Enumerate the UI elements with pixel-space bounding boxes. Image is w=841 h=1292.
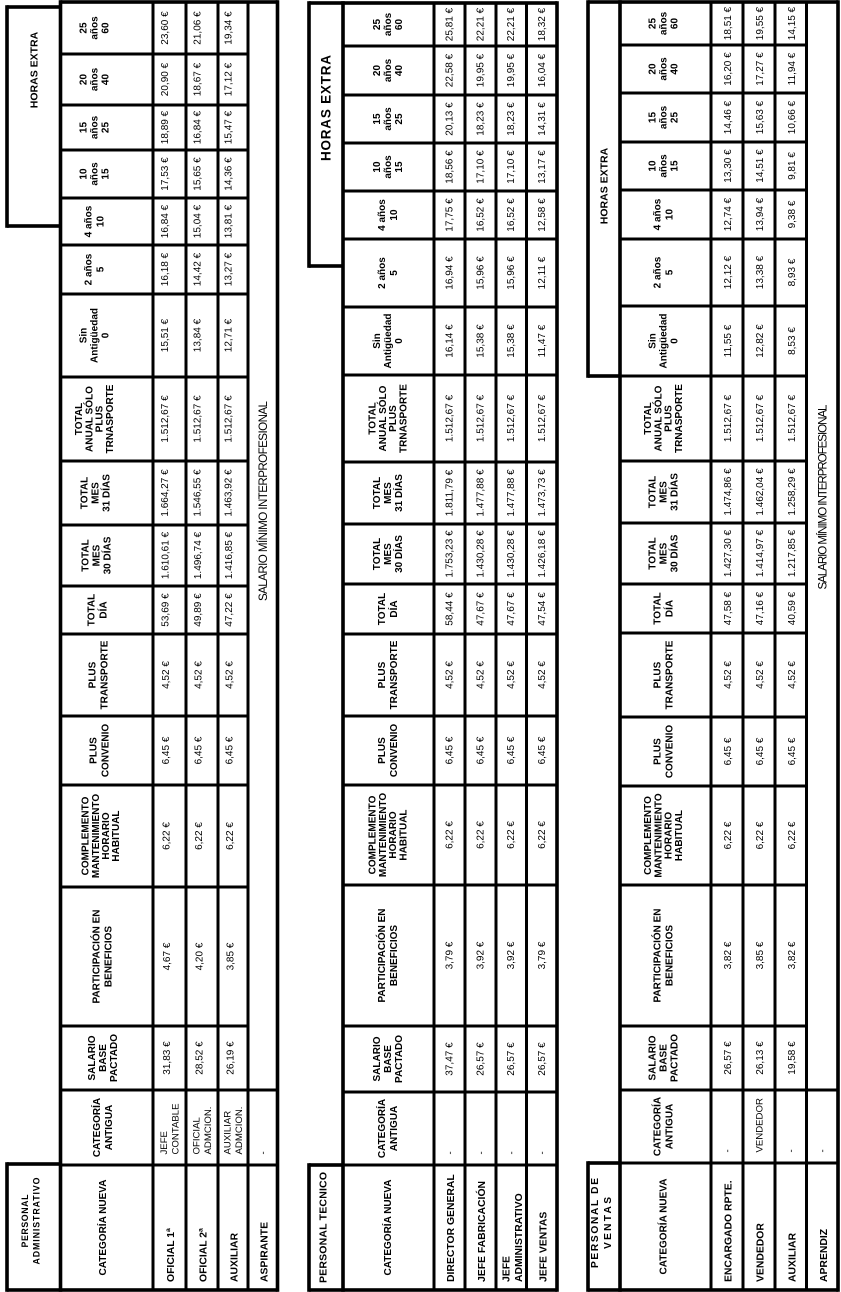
svg-text:20,13 €: 20,13 € — [445, 102, 456, 136]
svg-text:3,79 €: 3,79 € — [445, 941, 456, 969]
svg-text:19,55 €: 19,55 € — [755, 6, 766, 40]
svg-text:TRNASPORTE: TRNASPORTE — [674, 384, 685, 453]
svg-text:CONTABLE: CONTABLE — [171, 1104, 182, 1155]
svg-text:-: - — [786, 1149, 797, 1152]
svg-text:20: 20 — [648, 63, 659, 75]
svg-text:6,22 €: 6,22 € — [506, 821, 517, 849]
svg-text:PARTICIPACIÓN EN: PARTICIPACIÓN EN — [375, 908, 388, 1002]
svg-text:1.427,30 €: 1.427,30 € — [723, 529, 734, 577]
svg-text:años: años — [383, 58, 394, 82]
svg-text:22,21 €: 22,21 € — [506, 7, 517, 41]
svg-text:15,96 €: 15,96 € — [476, 256, 487, 290]
svg-text:1.546,55 €: 1.546,55 € — [193, 469, 204, 517]
svg-text:31 DÍAS: 31 DÍAS — [100, 474, 113, 512]
svg-text:1.512,67 €: 1.512,67 € — [787, 394, 798, 442]
svg-text:TOTAL: TOTAL — [648, 476, 659, 508]
svg-text:9,81 €: 9,81 € — [787, 152, 798, 180]
svg-text:CATEGORÍA: CATEGORÍA — [375, 1099, 388, 1158]
svg-text:14,31 €: 14,31 € — [537, 102, 548, 136]
svg-text:ANUAL SÓLO: ANUAL SÓLO — [82, 386, 95, 452]
svg-text:años: años — [90, 16, 101, 40]
svg-text:ANUAL SÓLO: ANUAL SÓLO — [651, 385, 664, 451]
svg-text:1.414,97 €: 1.414,97 € — [755, 529, 766, 577]
svg-text:15: 15 — [79, 122, 90, 134]
svg-text:años: años — [90, 162, 101, 186]
svg-text:3,82 €: 3,82 € — [787, 941, 798, 969]
svg-text:12,12 €: 12,12 € — [723, 255, 734, 289]
svg-text:58,44 €: 58,44 € — [445, 592, 456, 626]
svg-text:4 años: 4 años — [377, 199, 388, 231]
svg-text:14,36 €: 14,36 € — [224, 157, 235, 191]
svg-text:16,84 €: 16,84 € — [160, 204, 171, 238]
svg-text:PACTADO: PACTADO — [394, 1035, 405, 1083]
svg-text:3,92 €: 3,92 € — [506, 941, 517, 969]
svg-text:PARTICIPACIÓN EN: PARTICIPACIÓN EN — [651, 908, 664, 1002]
svg-text:10,66 €: 10,66 € — [787, 100, 798, 134]
svg-text:1.512,67 €: 1.512,67 € — [224, 395, 235, 443]
svg-text:HABITUAL: HABITUAL — [111, 810, 122, 861]
svg-text:ANTIGUA: ANTIGUA — [104, 1105, 115, 1151]
svg-text:8,93 €: 8,93 € — [787, 258, 798, 286]
svg-text:3,85 €: 3,85 € — [225, 942, 236, 970]
svg-text:15,51 €: 15,51 € — [160, 318, 171, 352]
svg-text:ANUAL SÓLO: ANUAL SÓLO — [376, 385, 389, 451]
svg-text:SALARIO: SALARIO — [87, 1035, 98, 1080]
svg-text:16,94 €: 16,94 € — [445, 256, 456, 290]
svg-text:0: 0 — [101, 332, 112, 338]
svg-text:18,23 €: 18,23 € — [476, 102, 487, 136]
svg-text:4,52 €: 4,52 € — [755, 661, 766, 689]
svg-text:PLUS: PLUS — [89, 737, 100, 764]
svg-text:Sin: Sin — [372, 333, 383, 349]
svg-text:1.258,29 €: 1.258,29 € — [787, 468, 798, 516]
svg-text:ADMCION.: ADMCION. — [234, 1107, 245, 1155]
svg-text:1.496,74 €: 1.496,74 € — [193, 531, 204, 579]
svg-text:17,27 €: 17,27 € — [755, 52, 766, 86]
svg-text:12,71 €: 12,71 € — [224, 318, 235, 352]
svg-text:1.512,67 €: 1.512,67 € — [445, 394, 456, 442]
svg-text:6,45 €: 6,45 € — [161, 736, 172, 764]
svg-text:HORAS EXTRA: HORAS EXTRA — [28, 31, 40, 108]
svg-text:-: - — [445, 1151, 456, 1154]
svg-text:1.474,86 €: 1.474,86 € — [723, 468, 734, 516]
svg-text:SALARIO: SALARIO — [648, 1035, 659, 1080]
svg-text:0: 0 — [394, 338, 405, 344]
svg-text:1.462,04 €: 1.462,04 € — [755, 468, 766, 516]
svg-text:15: 15 — [101, 168, 112, 180]
svg-text:16,84 €: 16,84 € — [193, 110, 204, 144]
svg-text:HABITUAL: HABITUAL — [674, 810, 685, 861]
svg-text:Sin: Sin — [79, 328, 90, 344]
svg-text:MES: MES — [91, 482, 102, 504]
svg-text:16,20 €: 16,20 € — [723, 52, 734, 86]
svg-text:4,52 €: 4,52 € — [161, 661, 172, 689]
svg-text:25: 25 — [670, 112, 681, 124]
svg-text:BENEFICIOS: BENEFICIOS — [104, 926, 115, 987]
svg-text:47,54 €: 47,54 € — [537, 592, 548, 626]
svg-text:6,45 €: 6,45 € — [723, 737, 734, 765]
svg-text:3,79 €: 3,79 € — [537, 941, 548, 969]
svg-text:17,10 €: 17,10 € — [476, 150, 487, 184]
svg-text:APRENDIZ: APRENDIZ — [819, 1228, 830, 1282]
svg-text:6,22 €: 6,22 € — [194, 822, 205, 850]
svg-text:DIRECTOR GENERAL: DIRECTOR GENERAL — [446, 1174, 457, 1282]
svg-text:17,10 €: 17,10 € — [506, 150, 517, 184]
svg-text:1.477,88 €: 1.477,88 € — [506, 469, 517, 517]
svg-text:Sin: Sin — [648, 333, 659, 349]
svg-text:31 DÍAS: 31 DÍAS — [668, 473, 681, 511]
svg-text:37,47 €: 37,47 € — [445, 1042, 456, 1076]
svg-text:ADMINISTRATIVO: ADMINISTRATIVO — [32, 1177, 42, 1264]
svg-text:13,94 €: 13,94 € — [755, 197, 766, 231]
svg-text:BASE: BASE — [383, 1045, 394, 1073]
svg-text:6,45 €: 6,45 € — [445, 736, 456, 764]
svg-text:1.426,18 €: 1.426,18 € — [537, 530, 548, 578]
svg-text:4,52 €: 4,52 € — [224, 661, 235, 689]
svg-text:19,34 €: 19,34 € — [224, 11, 235, 45]
svg-text:ASPIRANTE: ASPIRANTE — [259, 1222, 270, 1282]
svg-text:13,84 €: 13,84 € — [193, 318, 204, 352]
svg-text:TOTAL: TOTAL — [653, 592, 664, 624]
svg-text:PLUS: PLUS — [653, 738, 664, 765]
svg-text:ANTIGUA: ANTIGUA — [389, 1106, 400, 1152]
svg-text:1.217,85 €: 1.217,85 € — [787, 529, 798, 577]
svg-text:1.463,92 €: 1.463,92 € — [224, 469, 235, 517]
svg-text:6,45 €: 6,45 € — [787, 737, 798, 765]
svg-text:CATEGORÍA NUEVA: CATEGORÍA NUEVA — [96, 1180, 109, 1276]
svg-text:BASE: BASE — [659, 1044, 670, 1072]
svg-text:HORAS EXTRA: HORAS EXTRA — [599, 147, 611, 224]
svg-text:26,57 €: 26,57 € — [723, 1041, 734, 1075]
svg-text:25: 25 — [101, 122, 112, 134]
svg-text:CATEGORÍA NUEVA: CATEGORÍA NUEVA — [657, 1179, 670, 1275]
svg-text:14,46 €: 14,46 € — [723, 100, 734, 134]
svg-text:4,52 €: 4,52 € — [506, 661, 517, 689]
svg-text:22,21 €: 22,21 € — [476, 7, 487, 41]
svg-text:11,47 €: 11,47 € — [537, 324, 548, 357]
svg-text:Antigüedad: Antigüedad — [659, 314, 670, 369]
svg-text:PLUS: PLUS — [87, 661, 98, 688]
svg-text:JEFE VENTAS: JEFE VENTAS — [538, 1212, 549, 1282]
svg-text:2 años: 2 años — [377, 257, 388, 289]
svg-text:AUXILIAR: AUXILIAR — [223, 1111, 234, 1155]
svg-text:años: años — [659, 57, 670, 81]
svg-text:BASE: BASE — [98, 1044, 109, 1072]
svg-text:30 DÍAS: 30 DÍAS — [668, 534, 681, 572]
svg-text:19,95 €: 19,95 € — [476, 53, 487, 87]
svg-text:18,32 €: 18,32 € — [537, 7, 548, 41]
svg-text:14,15 €: 14,15 € — [787, 6, 798, 40]
svg-text:47,58 €: 47,58 € — [723, 591, 734, 625]
svg-text:TOTAL: TOTAL — [81, 539, 92, 571]
svg-text:25: 25 — [394, 113, 405, 125]
svg-text:PERSONAL DE: PERSONAL DE — [590, 1178, 601, 1268]
svg-text:años: años — [90, 115, 101, 139]
svg-text:años: años — [383, 12, 394, 36]
svg-text:12,58 €: 12,58 € — [537, 198, 548, 232]
svg-text:6,45 €: 6,45 € — [194, 736, 205, 764]
svg-text:años: años — [659, 11, 670, 35]
svg-text:1.477,88 €: 1.477,88 € — [476, 469, 487, 517]
svg-text:VENTAS: VENTAS — [603, 1197, 614, 1249]
svg-text:21,06 €: 21,06 € — [193, 11, 204, 45]
svg-text:AUXILIAR: AUXILIAR — [230, 1232, 241, 1282]
svg-text:4,67 €: 4,67 € — [162, 942, 173, 970]
svg-text:10: 10 — [389, 209, 400, 221]
svg-text:ADMINISTRATIVO: ADMINISTRATIVO — [514, 1193, 525, 1282]
svg-text:14,42 €: 14,42 € — [193, 252, 204, 286]
svg-text:CATEGORÍA: CATEGORÍA — [90, 1098, 103, 1157]
svg-text:31,83 €: 31,83 € — [162, 1041, 173, 1075]
svg-text:60: 60 — [101, 22, 112, 34]
svg-text:OFICIAL: OFICIAL — [192, 1117, 203, 1155]
svg-text:TOTAL: TOTAL — [372, 538, 383, 570]
svg-text:BENEFICIOS: BENEFICIOS — [665, 925, 676, 986]
svg-text:30 DÍAS: 30 DÍAS — [392, 535, 405, 573]
svg-text:PLUS: PLUS — [377, 661, 388, 688]
svg-text:47,67 €: 47,67 € — [506, 592, 517, 626]
svg-text:6,22 €: 6,22 € — [723, 821, 734, 849]
svg-text:26,57 €: 26,57 € — [476, 1042, 487, 1076]
svg-text:13,17 €: 13,17 € — [537, 150, 548, 184]
svg-text:20: 20 — [79, 74, 90, 86]
svg-text:16,52 €: 16,52 € — [476, 198, 487, 232]
svg-text:MES: MES — [659, 542, 670, 564]
svg-text:-: - — [476, 1151, 487, 1154]
svg-text:MES: MES — [383, 482, 394, 504]
svg-text:1.416,85 €: 1.416,85 € — [224, 531, 235, 579]
svg-text:TRNASPORTE: TRNASPORTE — [398, 384, 409, 453]
svg-text:12,74 €: 12,74 € — [723, 197, 734, 231]
svg-text:10: 10 — [648, 160, 659, 172]
svg-text:47,16 €: 47,16 € — [755, 591, 766, 625]
svg-text:TOTAL: TOTAL — [372, 477, 383, 509]
svg-text:OFICIAL 2ª: OFICIAL 2ª — [199, 1228, 210, 1282]
svg-text:16,14 €: 16,14 € — [445, 324, 456, 358]
svg-text:49,89 €: 49,89 € — [193, 593, 204, 627]
svg-text:Antigüedad: Antigüedad — [383, 314, 394, 369]
svg-text:25: 25 — [372, 19, 383, 31]
svg-text:60: 60 — [670, 18, 681, 30]
svg-text:0: 0 — [670, 338, 681, 344]
svg-text:6,22 €: 6,22 € — [225, 822, 236, 850]
svg-text:ENCARGADO RPTE.: ENCARGADO RPTE. — [724, 1180, 735, 1282]
svg-text:CONVENIO: CONVENIO — [665, 725, 676, 779]
svg-text:20,90 €: 20,90 € — [160, 62, 171, 96]
svg-text:20: 20 — [372, 65, 383, 77]
svg-text:DÍA: DÍA — [663, 600, 676, 617]
svg-text:6,45 €: 6,45 € — [476, 736, 487, 764]
svg-text:1.512,67 €: 1.512,67 € — [723, 394, 734, 442]
svg-text:2 años: 2 años — [84, 253, 95, 285]
svg-text:1.811,79 €: 1.811,79 € — [445, 469, 456, 516]
svg-text:años: años — [659, 105, 670, 129]
svg-text:-: - — [537, 1151, 548, 1154]
svg-text:1.753,23 €: 1.753,23 € — [445, 530, 456, 578]
svg-text:13,30 €: 13,30 € — [723, 149, 734, 183]
svg-text:JEFE FABRICACIÓN: JEFE FABRICACIÓN — [475, 1181, 488, 1282]
svg-text:PACTADO: PACTADO — [109, 1034, 120, 1082]
svg-text:16,04 €: 16,04 € — [537, 53, 548, 87]
svg-text:Antigüedad: Antigüedad — [90, 308, 101, 363]
svg-text:TRANSPORTE: TRANSPORTE — [99, 640, 110, 709]
svg-text:28,52 €: 28,52 € — [195, 1041, 206, 1075]
svg-text:10: 10 — [372, 161, 383, 173]
svg-text:TRANSPORTE: TRANSPORTE — [665, 640, 676, 709]
svg-text:25: 25 — [79, 22, 90, 34]
svg-text:MES: MES — [383, 543, 394, 565]
svg-text:13,81 €: 13,81 € — [224, 204, 235, 238]
svg-text:TRNASPORTE: TRNASPORTE — [105, 384, 116, 453]
svg-text:3,82 €: 3,82 € — [723, 941, 734, 969]
svg-text:PLUS: PLUS — [653, 661, 664, 688]
svg-text:HORAS EXTRA: HORAS EXTRA — [319, 55, 334, 161]
svg-text:26,19 €: 26,19 € — [226, 1041, 237, 1075]
svg-text:6,22 €: 6,22 € — [537, 821, 548, 849]
svg-text:15,38 €: 15,38 € — [506, 324, 517, 358]
svg-text:4,52 €: 4,52 € — [445, 661, 456, 689]
svg-text:5: 5 — [665, 269, 676, 275]
svg-text:6,45 €: 6,45 € — [225, 736, 236, 764]
svg-text:CONVENIO: CONVENIO — [101, 724, 112, 778]
svg-text:9,38 €: 9,38 € — [787, 200, 798, 228]
svg-text:1.430,28 €: 1.430,28 € — [476, 530, 487, 578]
svg-text:6,22 €: 6,22 € — [787, 821, 798, 849]
svg-text:-: - — [818, 1149, 829, 1152]
svg-text:31 DÍAS: 31 DÍAS — [392, 474, 405, 512]
svg-text:26,57 €: 26,57 € — [506, 1042, 517, 1076]
svg-text:15: 15 — [648, 112, 659, 124]
svg-text:40: 40 — [670, 63, 681, 75]
svg-text:1.512,67 €: 1.512,67 € — [193, 395, 204, 443]
svg-text:4,52 €: 4,52 € — [723, 661, 734, 689]
svg-text:CATEGORÍA NUEVA: CATEGORÍA NUEVA — [381, 1180, 394, 1276]
svg-text:TOTAL: TOTAL — [86, 594, 97, 626]
svg-text:15,38 €: 15,38 € — [476, 324, 487, 358]
svg-text:15,65 €: 15,65 € — [193, 157, 204, 191]
svg-text:25: 25 — [648, 18, 659, 30]
svg-text:JEFE: JEFE — [159, 1131, 170, 1154]
svg-text:17,53 €: 17,53 € — [160, 157, 171, 191]
svg-text:OFICIAL 1ª: OFICIAL 1ª — [166, 1228, 177, 1282]
svg-text:1.512,67 €: 1.512,67 € — [476, 394, 487, 442]
svg-text:15: 15 — [394, 161, 405, 173]
svg-text:MES: MES — [92, 544, 103, 566]
svg-text:1.512,67 €: 1.512,67 € — [160, 395, 171, 443]
svg-text:13,27 €: 13,27 € — [224, 252, 235, 286]
svg-text:4,52 €: 4,52 € — [476, 661, 487, 689]
svg-text:15,96 €: 15,96 € — [506, 256, 517, 290]
svg-text:18,56 €: 18,56 € — [445, 150, 456, 184]
svg-text:AUXILIAR: AUXILIAR — [787, 1232, 798, 1282]
svg-text:4,20 €: 4,20 € — [194, 942, 205, 970]
svg-text:ADMCION.: ADMCION. — [203, 1107, 214, 1155]
svg-text:40: 40 — [394, 65, 405, 77]
svg-text:53,69 €: 53,69 € — [161, 593, 172, 627]
svg-text:1.512,67 €: 1.512,67 € — [506, 394, 517, 442]
svg-text:ANTIGUA: ANTIGUA — [665, 1104, 676, 1150]
svg-text:CONVENIO: CONVENIO — [389, 724, 400, 778]
svg-text:26,13 €: 26,13 € — [755, 1041, 766, 1075]
svg-text:4,52 €: 4,52 € — [537, 661, 548, 689]
svg-text:PLUS: PLUS — [377, 737, 388, 764]
svg-text:16,18 €: 16,18 € — [160, 252, 171, 286]
svg-text:TOTAL: TOTAL — [648, 537, 659, 569]
svg-text:-: - — [722, 1149, 733, 1152]
svg-text:PERSONAL TECNICO: PERSONAL TECNICO — [318, 1172, 330, 1283]
svg-text:19,58 €: 19,58 € — [787, 1041, 798, 1075]
svg-text:6,22 €: 6,22 € — [755, 821, 766, 849]
svg-text:4,52 €: 4,52 € — [787, 661, 798, 689]
svg-text:6,22 €: 6,22 € — [445, 821, 456, 849]
svg-text:18,23 €: 18,23 € — [506, 102, 517, 136]
svg-text:6,45 €: 6,45 € — [537, 736, 548, 764]
svg-text:VENDEDOR: VENDEDOR — [756, 1223, 767, 1282]
svg-text:14,51 €: 14,51 € — [755, 149, 766, 183]
svg-text:6,45 €: 6,45 € — [506, 736, 517, 764]
svg-text:BENEFICIOS: BENEFICIOS — [389, 925, 400, 986]
svg-text:13,38 €: 13,38 € — [755, 255, 766, 289]
svg-text:6,22 €: 6,22 € — [162, 822, 173, 850]
svg-text:23,60 €: 23,60 € — [160, 11, 171, 45]
svg-text:15: 15 — [372, 113, 383, 125]
svg-text:15,04 €: 15,04 € — [193, 204, 204, 238]
svg-text:años: años — [383, 107, 394, 131]
svg-text:47,22 €: 47,22 € — [224, 593, 235, 627]
svg-text:15,47 €: 15,47 € — [224, 110, 235, 144]
svg-text:1.430,28 €: 1.430,28 € — [506, 530, 517, 578]
svg-text:15,63 €: 15,63 € — [755, 100, 766, 134]
svg-text:40,59 €: 40,59 € — [787, 591, 798, 625]
svg-text:16,52 €: 16,52 € — [506, 198, 517, 232]
svg-text:1.473,73 €: 1.473,73 € — [537, 469, 548, 517]
svg-text:-: - — [507, 1151, 518, 1154]
svg-text:18,89 €: 18,89 € — [160, 110, 171, 144]
svg-text:10: 10 — [665, 209, 676, 221]
svg-text:1.512,67 €: 1.512,67 € — [537, 394, 548, 442]
svg-text:años: años — [383, 155, 394, 179]
svg-text:TOTAL: TOTAL — [377, 593, 388, 625]
svg-text:3,85 €: 3,85 € — [755, 941, 766, 969]
svg-text:10: 10 — [96, 216, 107, 228]
svg-text:4 años: 4 años — [84, 205, 95, 237]
svg-text:3,92 €: 3,92 € — [476, 941, 487, 969]
svg-text:47,67 €: 47,67 € — [476, 592, 487, 626]
svg-text:CATEGORÍA: CATEGORÍA — [651, 1097, 664, 1156]
svg-text:SALARIO: SALARIO — [372, 1036, 383, 1081]
svg-text:1.664,27 €: 1.664,27 € — [160, 469, 171, 517]
svg-text:1.610,61 €: 1.610,61 € — [161, 531, 172, 579]
svg-text:DÍA: DÍA — [96, 601, 109, 618]
svg-text:60: 60 — [394, 19, 405, 31]
svg-text:19,95 €: 19,95 € — [506, 53, 517, 87]
svg-text:PARTICIPACIÓN EN: PARTICIPACIÓN EN — [90, 909, 103, 1003]
svg-text:30 DÍAS: 30 DÍAS — [101, 536, 114, 574]
svg-text:12,11 €: 12,11 € — [537, 256, 548, 289]
svg-text:TRANSPORTE: TRANSPORTE — [389, 640, 400, 709]
svg-text:10: 10 — [79, 168, 90, 180]
svg-text:5: 5 — [389, 270, 400, 276]
svg-text:6,45 €: 6,45 € — [755, 737, 766, 765]
svg-text:40: 40 — [101, 74, 112, 86]
svg-text:DÍA: DÍA — [387, 600, 400, 617]
svg-text:SALARIO MÍNIMO INTERPROFESIONA: SALARIO MÍNIMO INTERPROFESIONAL — [257, 400, 270, 601]
svg-text:PACTADO: PACTADO — [670, 1034, 681, 1082]
svg-text:años: años — [659, 154, 670, 178]
svg-text:MES: MES — [659, 481, 670, 503]
svg-text:26,57 €: 26,57 € — [537, 1042, 548, 1076]
svg-text:JEFE: JEFE — [502, 1256, 513, 1282]
